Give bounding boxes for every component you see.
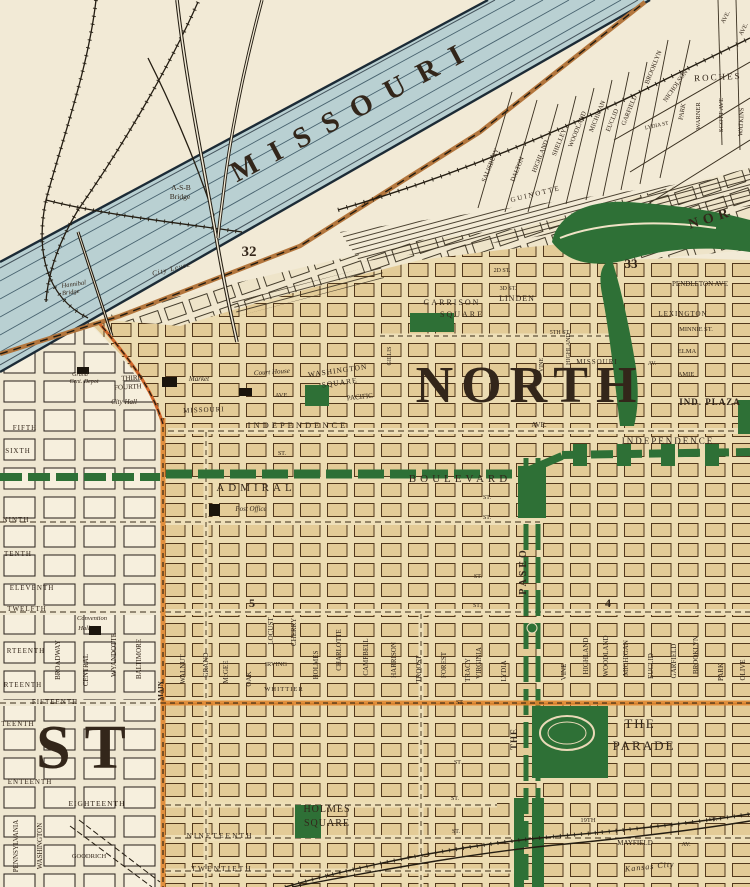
map-label: ST. [483, 495, 492, 501]
map-label: GARRISON [424, 298, 481, 307]
map-label: ST. [451, 796, 460, 802]
map-label: HOLMES [312, 651, 320, 680]
map-label: FIFTEENTH [32, 698, 78, 706]
map-label: GOODRICH [72, 853, 107, 860]
map-label: AVE. [275, 392, 290, 399]
map-label: FIFTH [13, 424, 37, 432]
map-label: LYDIA [500, 660, 508, 681]
map-label: McGEE [222, 661, 230, 684]
map-label: THIRD [121, 373, 143, 382]
map-label: ADMIRAL [216, 482, 295, 494]
map-canvas: MISSOURIA-S-BBridgeHannibalBridgeCity Le… [0, 0, 750, 887]
map-image: MISSOURIA-S-BBridgeHannibalBridgeCity Le… [0, 0, 750, 887]
map-label: BOULEVARD [409, 473, 511, 485]
map-label: INDEPENDENCE [248, 420, 349, 430]
postoffice-building [209, 504, 220, 516]
market-building [162, 377, 177, 387]
map-label: 5 [249, 596, 255, 610]
map-circle [527, 623, 537, 633]
map-label: City Hall [111, 398, 137, 406]
map-label: Cent. Depot [70, 379, 99, 385]
map-label: LOCUST [267, 617, 275, 645]
map-label: CHARLOTTE [335, 629, 343, 671]
map-label: WOODLAND [602, 635, 610, 676]
map-label: CENTRAL [82, 654, 90, 686]
map-label: OAK [245, 671, 253, 686]
map-label: Hall [77, 625, 90, 632]
map-label: HOLMES [303, 804, 350, 815]
map-label: MINNIE ST. [679, 326, 713, 333]
map-label: TROOST [415, 655, 423, 683]
map-label: ST. [709, 816, 718, 823]
map-label: NINETEENTH [186, 831, 253, 840]
map-label: LEXINGTON [658, 310, 707, 318]
map-label: MICHIGAN [622, 640, 630, 676]
map-label: IND. PLAZA [679, 397, 741, 407]
map-label: 4 [605, 596, 611, 610]
map-label: RTEENTH [7, 647, 45, 655]
map-rect [518, 466, 546, 518]
map-label: NORTH [416, 357, 645, 414]
map-label: Post Office [234, 505, 266, 513]
map-label: ST [36, 714, 140, 782]
map-label: ST. [456, 700, 465, 706]
map-label: TWENTIETH [191, 864, 252, 873]
map-label: ST. [278, 451, 287, 457]
map-label: ST. [473, 603, 482, 609]
map-label: SQUARE [304, 818, 350, 829]
map-label: GILLIS [387, 347, 393, 366]
map-label: ST. [483, 515, 492, 521]
map-label: Bridge [170, 192, 191, 201]
map-label: CAMPBELL [362, 638, 370, 675]
map-label: AV. [681, 841, 691, 848]
map-label: BROADWAY [54, 640, 62, 680]
map-label: MISSOURI [183, 405, 225, 414]
map-label: VINE [560, 664, 568, 681]
map-label: OLIVE [739, 660, 747, 681]
map-label: EUCLID [647, 653, 655, 679]
map-label: THE [509, 728, 519, 750]
map-rect [514, 798, 524, 887]
map-label: BALTIMORE [135, 639, 143, 679]
map-label: 3D ST. [500, 286, 517, 292]
map-label: Grand [72, 372, 89, 378]
convention-hall-building [89, 626, 101, 635]
map-label: THE [624, 716, 655, 731]
map-label: TRACY [464, 658, 472, 682]
map-rect [661, 444, 675, 466]
map-label: ELMA [678, 348, 697, 355]
map-label: TWELFTH [7, 605, 47, 613]
map-rect [573, 444, 587, 466]
map-label: SCOTT AVE [718, 98, 725, 132]
map-label: ST. [474, 574, 483, 580]
map-label: A-S-B [171, 183, 191, 192]
map-label: PENNSYLVANIA [12, 820, 20, 873]
map-label: VINE [539, 358, 545, 373]
map-label: PASEO [518, 547, 529, 595]
map-label: 32 [242, 244, 257, 260]
map-label: MAYFIELD [617, 839, 653, 847]
map-label: AMIE [678, 371, 695, 378]
map-label: ST. [454, 760, 463, 766]
map-label: HIGHLAND [582, 638, 590, 675]
map-label: 19TH [580, 817, 595, 824]
map-label: ELEVENTH [10, 584, 55, 592]
map-label: MAIN [157, 681, 165, 700]
map-label: HARRISON [390, 642, 398, 678]
map-label: SQUARE [440, 310, 484, 319]
courthouse-building [239, 388, 252, 396]
map-label: TEENTH [1, 720, 34, 728]
map-label: GRAND [202, 653, 210, 678]
map-label: Convention [77, 615, 107, 622]
map-label: IRVING [265, 661, 288, 668]
map-label: NINTH [3, 516, 30, 524]
map-rect [617, 444, 631, 466]
map-label: WYANDOTTE [110, 633, 118, 677]
map-label: TENTH [4, 550, 32, 558]
map-label: WALNUT [179, 654, 187, 684]
map-label: 2D ST. [494, 268, 511, 274]
map-label: LINDEN [499, 294, 535, 303]
map-label: ST. [452, 829, 461, 835]
map-label: BROOKLYN [692, 636, 700, 674]
map-label: PARK [717, 663, 725, 681]
map-label: SIXTH [5, 447, 31, 455]
map-label: EIGHTEENTH [68, 799, 125, 808]
map-label: PARADE [613, 738, 676, 753]
map-label: INDEPENDENCE [622, 436, 715, 446]
map-label: FOURTH [114, 382, 142, 391]
map-label: CHERRY [290, 618, 298, 646]
map-label: VIRGINIA [475, 647, 483, 679]
map-label: WHITTIER [264, 686, 303, 693]
map-label: PENDLETON AVE [672, 280, 728, 288]
map-label: AVE. [531, 421, 546, 429]
north-district [86, 244, 750, 887]
map-label: WARNER [695, 102, 702, 130]
map-label: HIGHLAND [566, 333, 572, 365]
map-label: AV. [648, 361, 657, 367]
map-rect [705, 444, 719, 466]
map-label: GARFIELD [670, 644, 678, 679]
map-label: RTEENTH [4, 681, 42, 689]
map-label: FOREST [440, 651, 448, 678]
map-label: Market [188, 375, 210, 383]
map-rect [532, 798, 544, 887]
map-label: 33 [625, 256, 639, 271]
map-label: WASHINGTON [36, 823, 44, 870]
